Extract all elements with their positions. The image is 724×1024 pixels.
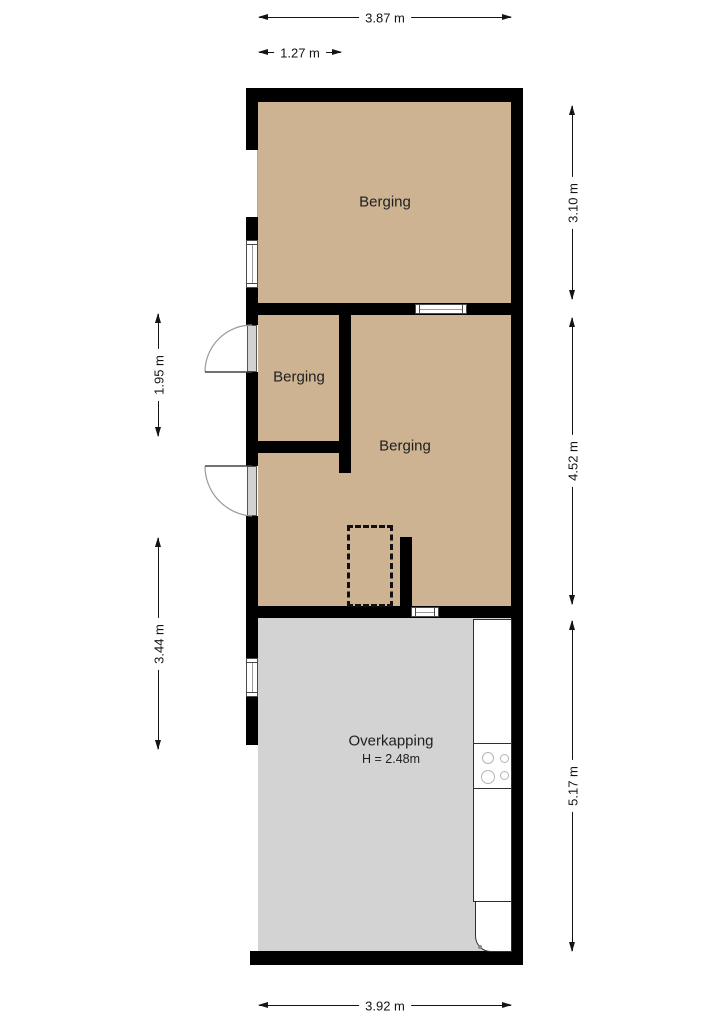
dimension-top-partial: 1.27 m — [258, 48, 342, 57]
wall-divider-lower — [248, 606, 511, 618]
window-icon — [415, 304, 467, 314]
door-leaf — [247, 325, 257, 372]
wall-left-segment — [246, 697, 258, 745]
door-leaf — [247, 466, 257, 516]
room-label-berging-top: Berging — [359, 194, 411, 211]
wall-top — [248, 88, 523, 102]
appliance-rounded — [475, 901, 512, 952]
dimension-right-middle: 4.52 m — [568, 317, 577, 605]
window-icon — [246, 240, 258, 288]
dashed-feature-outline — [347, 525, 393, 607]
floor-plan-canvas: Berging Berging Berging Overkapping H = … — [0, 0, 724, 1024]
dimension-label: 3.44 m — [151, 618, 166, 670]
dimension-label: 4.52 m — [565, 435, 580, 487]
dimension-right-lower: 5.17 m — [568, 620, 577, 952]
wall-interior-horizontal — [254, 441, 339, 453]
burner-icon — [482, 752, 494, 764]
dimension-label: 3.87 m — [359, 10, 411, 25]
dimension-bottom-total: 3.92 m — [258, 1001, 512, 1010]
window-icon — [411, 607, 439, 617]
dimension-label: 3.10 m — [565, 177, 580, 229]
wall-left-segment — [246, 88, 258, 150]
wall-divider-upper — [248, 303, 511, 315]
burner-icon — [500, 754, 509, 763]
counter-section — [473, 619, 512, 744]
appliance-knob-icon — [478, 945, 482, 949]
wall-left-segment — [246, 217, 258, 240]
dimension-label: 1.27 m — [274, 45, 326, 60]
window-icon — [246, 658, 258, 697]
wall-right — [511, 88, 523, 965]
dimension-label: 5.17 m — [565, 760, 580, 812]
cooktop — [473, 743, 512, 789]
wall-left-segment — [246, 516, 258, 658]
dimension-left-upper: 1.95 m — [154, 313, 163, 437]
room-height-note: H = 2.48m — [362, 752, 420, 766]
wall-interior-vertical — [339, 315, 351, 473]
open-edge-line — [257, 150, 258, 217]
room-label-overkapping: Overkapping — [348, 733, 433, 750]
dimension-top-total: 3.87 m — [258, 13, 512, 22]
dimension-label: 3.92 m — [359, 998, 411, 1013]
counter-section — [473, 788, 512, 902]
dimension-left-lower: 3.44 m — [154, 537, 163, 750]
dimension-label: 1.95 m — [151, 349, 166, 401]
dimension-right-upper: 3.10 m — [568, 105, 577, 300]
burner-icon — [500, 771, 509, 780]
room-label-berging-large: Berging — [379, 438, 431, 455]
wall-bottom — [250, 951, 523, 965]
room-label-berging-small: Berging — [273, 369, 325, 386]
burner-icon — [481, 770, 495, 784]
